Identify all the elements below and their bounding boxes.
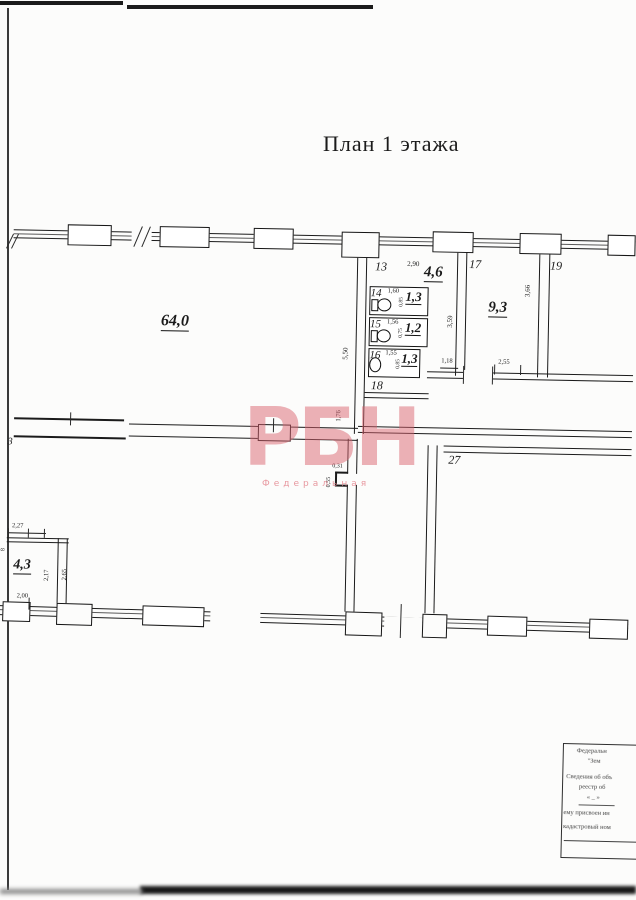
room-27-number: 27	[448, 454, 460, 466]
stamp-line: Федеральн	[577, 748, 607, 755]
dim-160: 1,60	[388, 288, 399, 295]
dim-265: 2,65	[62, 552, 69, 580]
dim-176: 1,76	[336, 395, 343, 421]
window	[432, 231, 473, 253]
dim-217: 2,17	[44, 555, 51, 581]
page-title: План 1 этажа	[323, 131, 459, 157]
toilet-bowl	[377, 329, 391, 342]
wall-room27-left	[424, 445, 437, 613]
wall-sanitary-left	[354, 256, 367, 434]
dim-085: 0,85	[399, 293, 405, 307]
window	[589, 619, 629, 640]
dim-line-118	[440, 367, 458, 369]
door-opening-bottom	[384, 617, 422, 630]
dim-031: 0,31	[332, 463, 343, 469]
dim-366: 3,66	[525, 267, 533, 297]
wall-27-divider-lower	[344, 485, 356, 612]
dim-tick	[44, 529, 45, 538]
dim-118: 1,18	[441, 358, 452, 365]
dim-tick	[8, 528, 9, 537]
room-17-area: 9,3	[488, 300, 507, 317]
room-16-area: 1,3	[401, 352, 418, 367]
room-17-number: 17	[469, 258, 481, 270]
room-16-number: 16	[369, 350, 380, 361]
wall-room19-left	[537, 251, 550, 377]
dim-550-bottom	[262, 511, 263, 541]
corridor-wall-right-lower	[444, 446, 632, 457]
corridor-wall-thick	[129, 424, 358, 441]
room-15-area: 1,2	[405, 321, 422, 336]
stamp-rule	[579, 804, 615, 806]
wall-under-rooms	[427, 371, 633, 382]
scan-edge-top-mid	[127, 5, 373, 9]
toilet-icon	[371, 329, 393, 342]
dim-156: 1,56	[387, 319, 398, 326]
wall-break-bottom	[210, 609, 260, 626]
axis-label-8: 8	[1, 539, 7, 551]
room-18-number: 18	[371, 379, 383, 391]
stamp-rule	[564, 840, 636, 843]
scan-edge-top-left	[0, 1, 123, 5]
dim-075: 0,75	[399, 324, 405, 338]
window	[2, 601, 31, 622]
dim-200: 2,00	[17, 593, 28, 600]
wall-pier-top	[341, 232, 379, 259]
window	[487, 616, 528, 637]
door-tick	[463, 366, 465, 384]
toilet-icon	[371, 298, 393, 311]
window	[142, 605, 205, 627]
scanned-floorplan-page: { "title": "План 1 этажа", "watermark": …	[0, 0, 636, 900]
room-19-number: 19	[550, 260, 562, 272]
window	[159, 226, 209, 248]
room-14-number: 14	[370, 288, 381, 299]
corridor-wall-thin-lower	[14, 435, 126, 439]
wall-27-divider-upper	[347, 439, 358, 474]
wall-bottom-exterior	[0, 605, 628, 634]
room-43-area: 4,3	[13, 558, 31, 574]
corridor-wall-right-upper	[358, 426, 632, 438]
door-opening-room17	[463, 370, 493, 382]
dim-tick	[70, 412, 71, 425]
wall-under-sanitary	[365, 392, 429, 399]
room-13-number: 13	[375, 260, 387, 272]
window	[253, 228, 293, 250]
dim-550-top: 5,50	[342, 330, 350, 360]
dim-255: 2,55	[498, 360, 509, 367]
wall-pier-bottom	[422, 614, 448, 639]
room-15-number: 15	[370, 319, 381, 330]
window	[67, 224, 111, 246]
dim-359: 3,59	[447, 298, 455, 328]
stamp-line: реестр об	[579, 784, 606, 791]
dim-055: 0,55	[326, 471, 332, 487]
toilet-bowl	[377, 298, 391, 311]
dim-tick	[28, 529, 29, 538]
stamp-line: кадастровый ном	[563, 824, 611, 832]
wall-notch	[335, 471, 348, 473]
stamp-line: « _ »	[587, 795, 600, 802]
scan-edge-bottom	[140, 886, 636, 894]
stamp-line: "Зем	[588, 759, 601, 766]
stamp-line: Сведения об объ	[566, 774, 612, 782]
room-13-area: 4,6	[424, 265, 443, 282]
window	[519, 233, 561, 255]
window	[607, 235, 635, 257]
stamp-line: ему присвоен ин	[563, 810, 609, 818]
dim-tick	[494, 365, 495, 375]
axis-label-3: 3	[8, 437, 13, 447]
dim-290: 2,90	[407, 261, 419, 268]
wall-pier-bottom	[345, 611, 383, 636]
wall-room17-left	[455, 250, 467, 376]
room-64-area: 64,0	[161, 313, 189, 332]
wall-pier-corridor	[258, 424, 291, 442]
dim-tick	[520, 365, 521, 375]
wall-pier-bottom	[56, 603, 93, 626]
dim-155: 1,55	[385, 350, 396, 357]
registration-stamp: Федеральн "Зем Сведения об объ реестр об…	[560, 743, 636, 860]
dim-tick	[28, 598, 29, 610]
wall-notch	[335, 471, 337, 485]
floor-plan: 64,0 5,50 13 2,90 4,6 14 1,60 0,85 1,3 1…	[0, 215, 636, 707]
dim-227: 2,27	[12, 523, 23, 530]
room-14-area: 1,3	[405, 290, 422, 305]
scan-edge-bottom-left	[0, 889, 142, 894]
